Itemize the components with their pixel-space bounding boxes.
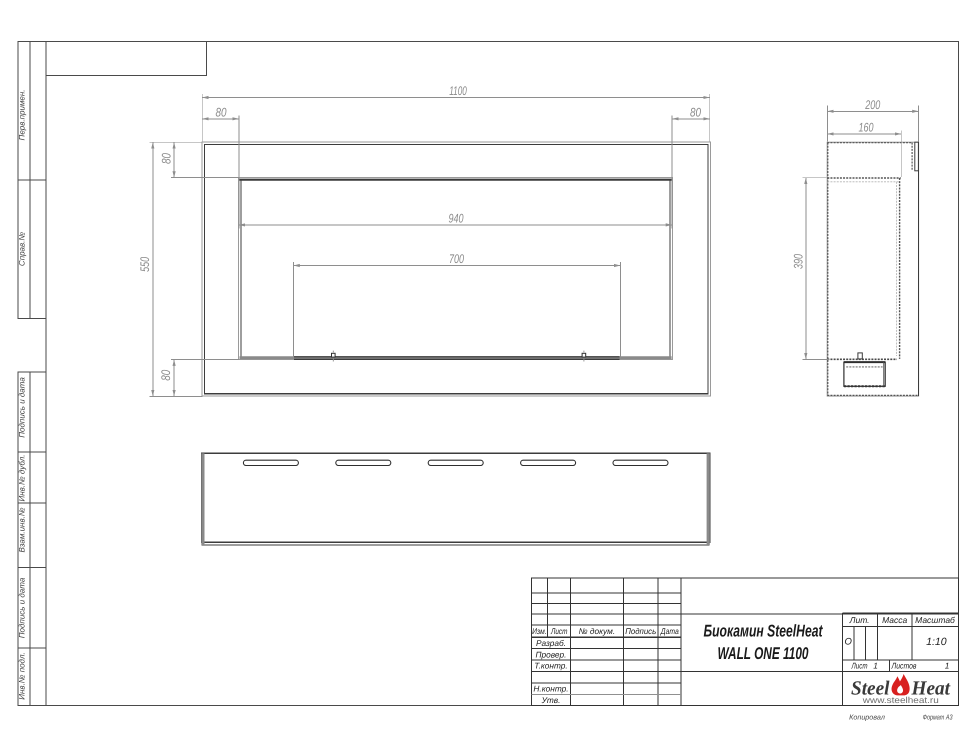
svg-text:390: 390 [791, 254, 805, 269]
svg-text:Провер.: Провер. [536, 649, 567, 659]
svg-text:1100: 1100 [449, 84, 467, 98]
svg-text:Листов: Листов [891, 661, 917, 671]
svg-text:1:10: 1:10 [926, 636, 947, 648]
svg-text:80: 80 [159, 370, 173, 381]
svg-text:Разраб.: Разраб. [536, 638, 566, 648]
svg-text:Дата: Дата [660, 626, 679, 636]
svg-text:Перв.примен.: Перв.примен. [18, 90, 27, 141]
svg-text:1: 1 [945, 661, 950, 671]
svg-text:№ докум.: № докум. [579, 626, 616, 636]
svg-text:700: 700 [449, 252, 464, 266]
svg-text:Справ.№: Справ.№ [18, 232, 27, 266]
svg-text:80: 80 [216, 105, 227, 119]
svg-text:200: 200 [864, 98, 880, 112]
svg-text:Подпись и дата: Подпись и дата [18, 577, 27, 638]
svg-text:Масса: Масса [882, 615, 907, 625]
svg-text:Подпись: Подпись [625, 626, 656, 636]
svg-text:Н.контр.: Н.контр. [533, 684, 568, 694]
svg-text:Инв.№ дубл.: Инв.№ дубл. [18, 455, 27, 502]
svg-text:80: 80 [690, 105, 701, 119]
svg-text:160: 160 [859, 120, 874, 134]
svg-text:Лист: Лист [550, 626, 567, 636]
svg-text:940: 940 [449, 211, 464, 225]
svg-text:www.steelheat.ru: www.steelheat.ru [862, 695, 939, 705]
svg-text:WALL ONE 1100: WALL ONE 1100 [718, 644, 809, 663]
svg-text:Взам.инв.№: Взам.инв.№ [18, 507, 27, 552]
svg-text:Подпись и дата: Подпись и дата [18, 377, 27, 438]
svg-text:Лит.: Лит. [849, 615, 870, 625]
svg-text:550: 550 [138, 257, 152, 272]
svg-text:Биокамин SteelHeat: Биокамин SteelHeat [704, 622, 824, 641]
svg-text:Формат А3: Формат А3 [923, 713, 953, 722]
svg-text:Изм.: Изм. [532, 626, 547, 636]
svg-text:1: 1 [873, 661, 878, 671]
svg-text:80: 80 [160, 153, 174, 164]
svg-text:Инв.№ подл.: Инв.№ подл. [18, 652, 27, 699]
svg-text:О: О [845, 637, 853, 648]
svg-text:Масштаб: Масштаб [915, 615, 956, 625]
svg-text:Копировал: Копировал [849, 713, 885, 722]
svg-text:Утв.: Утв. [541, 695, 561, 705]
svg-text:Лист: Лист [851, 661, 868, 671]
svg-text:Т.контр.: Т.контр. [534, 661, 567, 671]
